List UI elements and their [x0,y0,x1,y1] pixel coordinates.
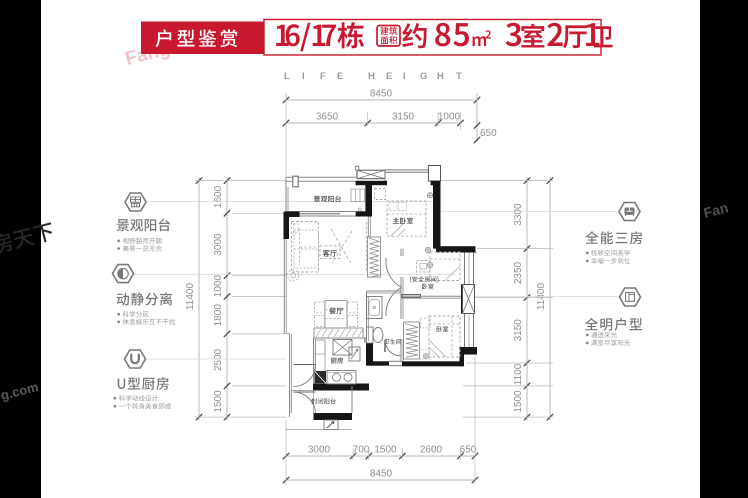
svg-text:3300: 3300 [513,203,524,226]
svg-text:1000: 1000 [213,275,224,298]
svg-text:2500: 2500 [213,348,224,371]
svg-text:700: 700 [353,445,370,456]
svg-text:3000: 3000 [308,445,331,456]
svg-text:1500: 1500 [213,390,224,413]
svg-text:1100: 1100 [513,363,524,385]
svg-text:1500: 1500 [374,445,397,456]
svg-text:3650: 3650 [316,112,339,123]
svg-text:3150: 3150 [513,319,524,342]
svg-text:1800: 1800 [213,304,224,327]
svg-text:8450: 8450 [370,469,393,480]
svg-text:1600: 1600 [213,185,224,208]
svg-text:3150: 3150 [392,112,415,123]
svg-text:1000: 1000 [438,112,461,123]
svg-text:650: 650 [460,445,477,456]
svg-text:1500: 1500 [513,390,524,413]
svg-text:2600: 2600 [420,445,443,456]
svg-text:650: 650 [480,128,497,139]
svg-text:11400: 11400 [185,283,196,311]
svg-text:2350: 2350 [513,261,524,284]
svg-text:8450: 8450 [370,89,393,100]
svg-text:3000: 3000 [213,233,224,256]
